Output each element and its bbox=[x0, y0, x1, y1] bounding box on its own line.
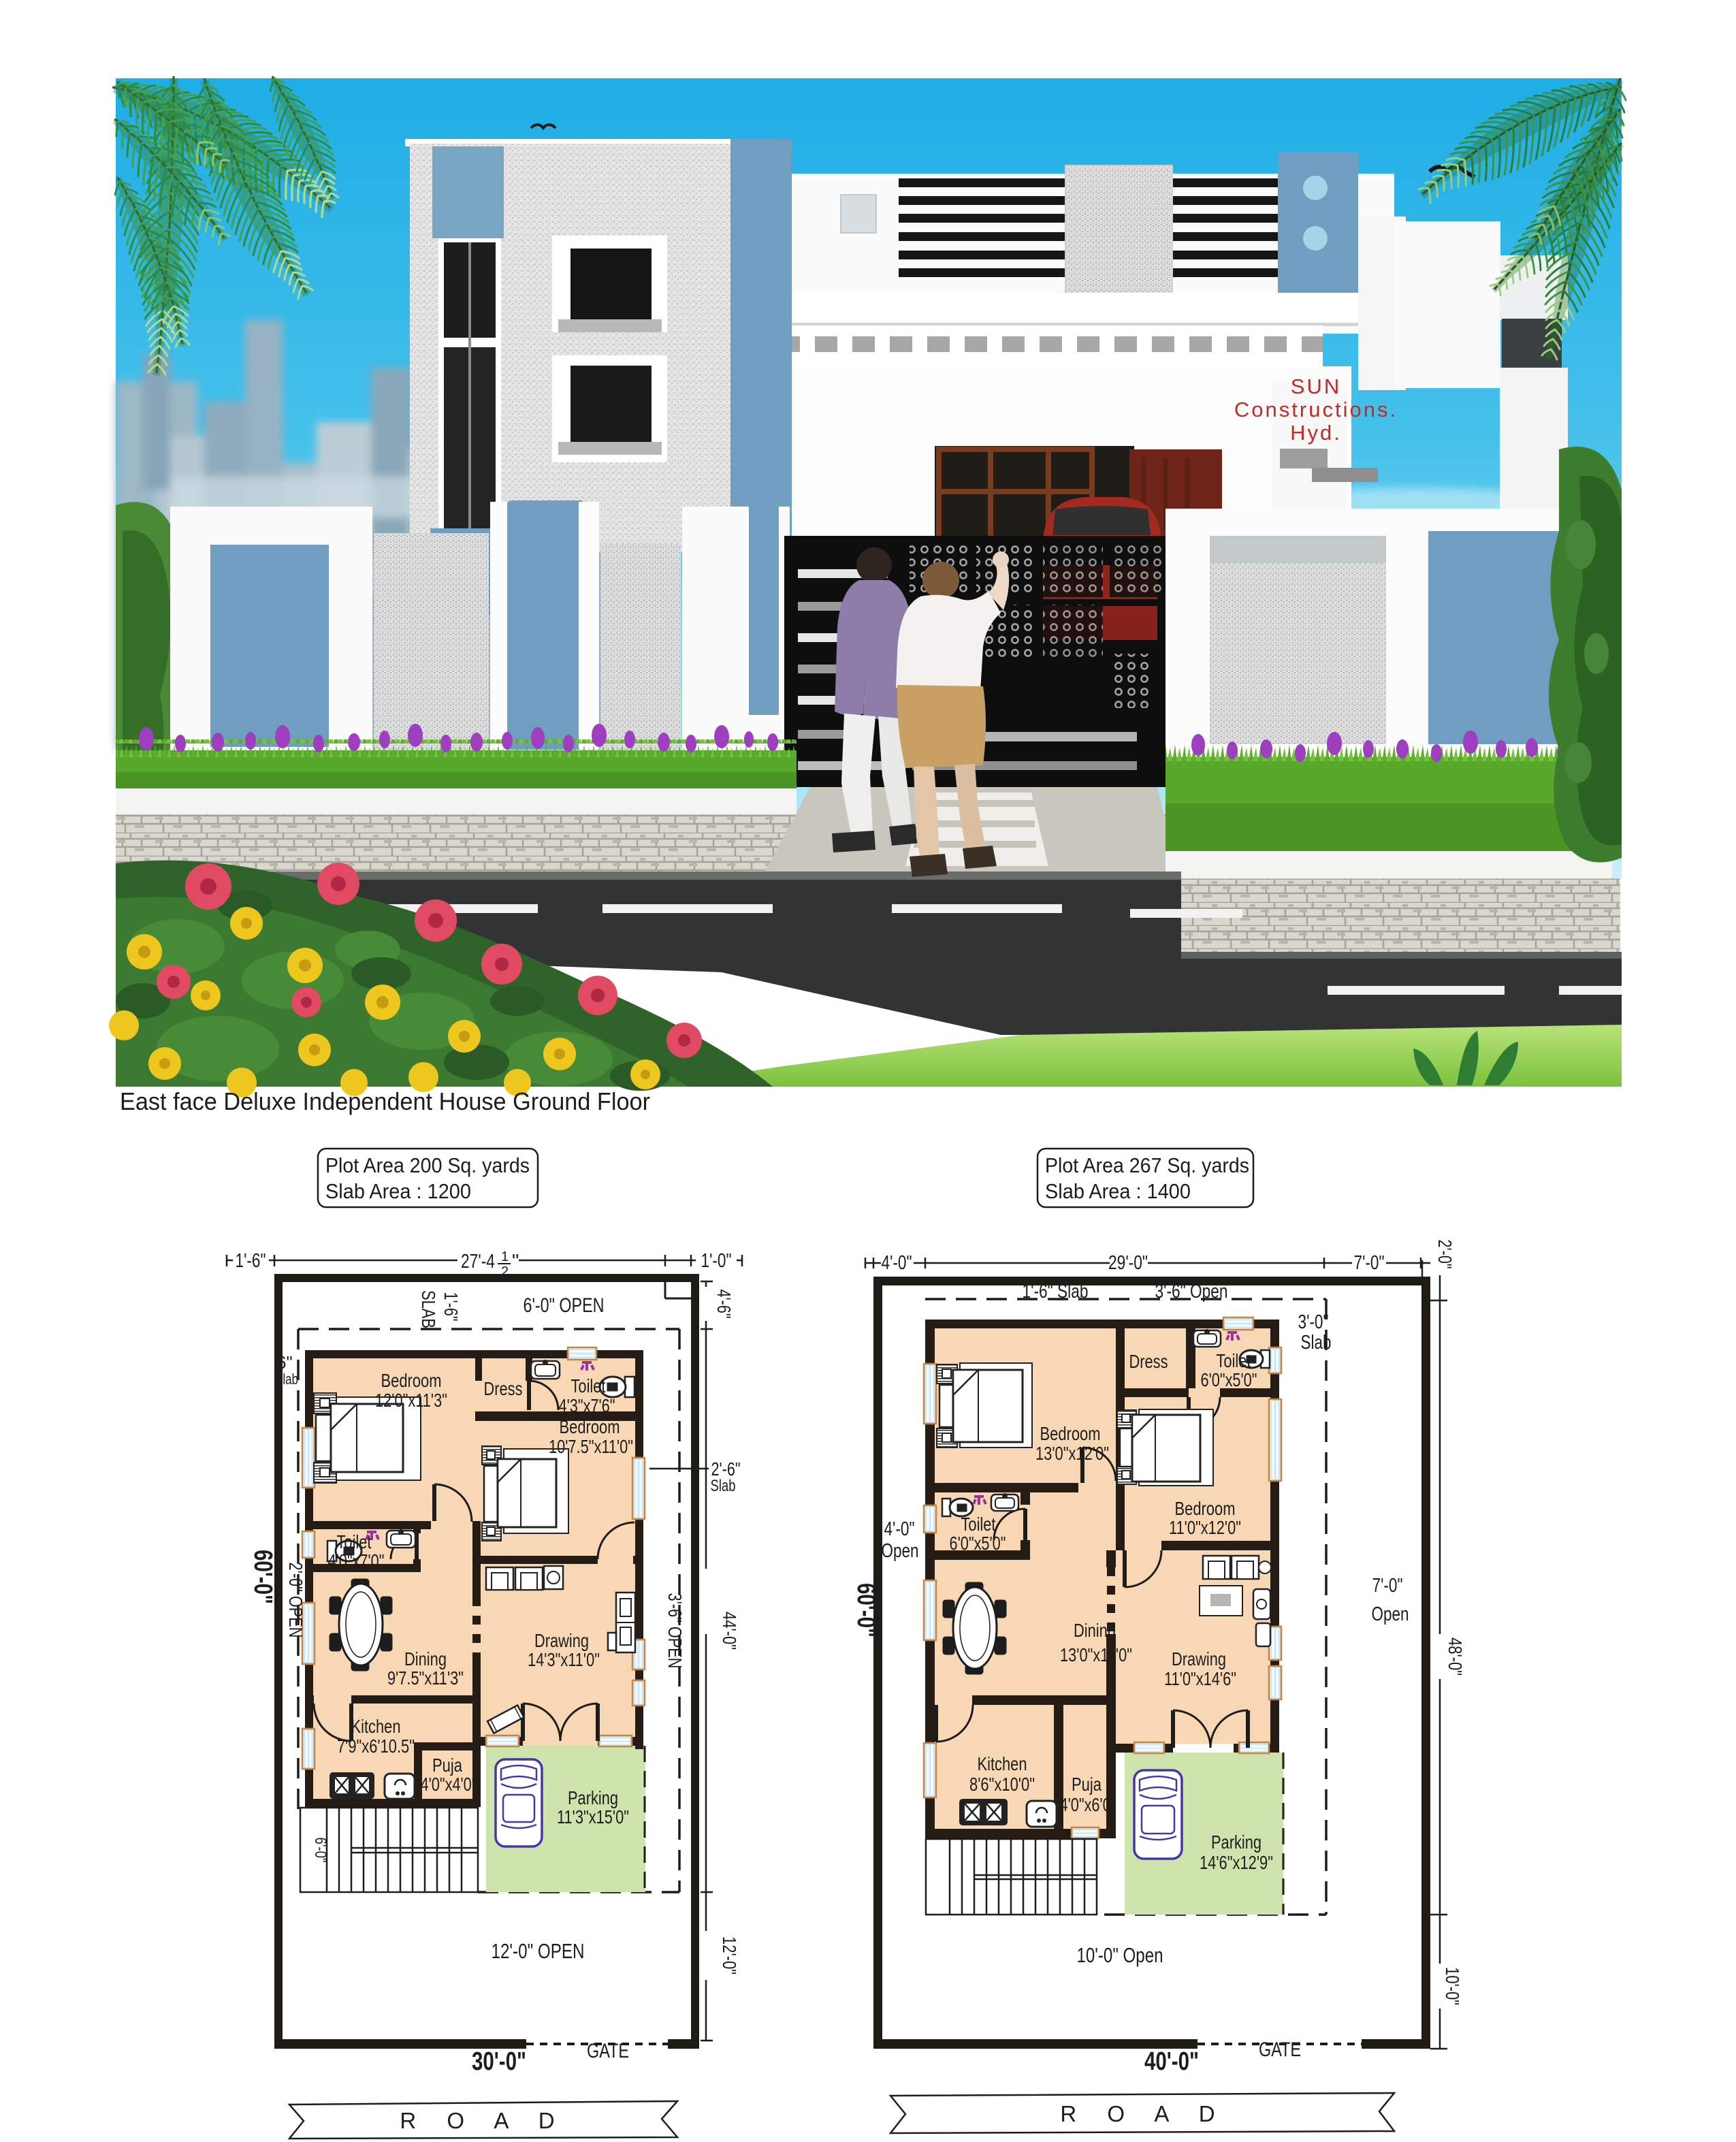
svg-text:1'-6" Slab: 1'-6" Slab bbox=[1023, 1281, 1089, 1302]
svg-text:Toilet: Toilet bbox=[337, 1531, 372, 1552]
svg-text:4'0"x6'0": 4'0"x6'0" bbox=[1060, 1794, 1116, 1815]
svg-text:8'6"x10'0": 8'6"x10'0" bbox=[969, 1774, 1035, 1795]
svg-text:3'-0": 3'-0" bbox=[1298, 1311, 1329, 1333]
svg-text:Dining: Dining bbox=[1074, 1620, 1116, 1641]
svg-text:Dining: Dining bbox=[404, 1648, 447, 1669]
svg-text:4'0"x4'0": 4'0"x4'0" bbox=[421, 1774, 477, 1795]
svg-text:Puja: Puja bbox=[432, 1755, 462, 1776]
svg-text:Slab: Slab bbox=[275, 1371, 298, 1388]
svg-text:6'0"x5'0": 6'0"x5'0" bbox=[1201, 1369, 1257, 1390]
svg-text:Kitchen: Kitchen bbox=[978, 1753, 1027, 1774]
svg-text:Toilet: Toilet bbox=[961, 1514, 996, 1535]
svg-text:4'-0": 4'-0" bbox=[882, 1252, 912, 1274]
svg-text:40'-0": 40'-0" bbox=[1144, 2047, 1199, 2076]
svg-text:6": 6" bbox=[276, 1352, 293, 1373]
svg-text:Slab Area : 1400: Slab Area : 1400 bbox=[1045, 1179, 1191, 1203]
svg-text:SLAB: SLAB bbox=[418, 1290, 439, 1328]
svg-text:60'-0": 60'-0" bbox=[852, 1583, 880, 1637]
svg-text:14'3"x11'0": 14'3"x11'0" bbox=[528, 1649, 600, 1670]
svg-text:Bedroom: Bedroom bbox=[560, 1416, 620, 1437]
svg-text:Constructions.: Constructions. bbox=[1234, 398, 1398, 421]
svg-text:Dress: Dress bbox=[484, 1378, 523, 1399]
svg-text:13'0"x12'0": 13'0"x12'0" bbox=[1035, 1443, 1109, 1464]
svg-text:6'-0": 6'-0" bbox=[311, 1838, 329, 1863]
svg-text:1: 1 bbox=[501, 1249, 509, 1264]
svg-text:2'-0": 2'-0" bbox=[1434, 1240, 1456, 1269]
svg-text:6'-0" OPEN: 6'-0" OPEN bbox=[524, 1294, 605, 1317]
svg-text:Drawing: Drawing bbox=[534, 1630, 589, 1651]
svg-text:10'-0" Open: 10'-0" Open bbox=[1077, 1943, 1163, 1967]
svg-text:3'-6" OPEN: 3'-6" OPEN bbox=[664, 1593, 686, 1669]
svg-text:Slab: Slab bbox=[711, 1477, 736, 1495]
svg-text:2'-0" OPEN: 2'-0" OPEN bbox=[285, 1563, 306, 1638]
svg-text:Plot Area 200 Sq. yards: Plot Area 200 Sq. yards bbox=[325, 1153, 530, 1177]
svg-text:Toilet: Toilet bbox=[1217, 1350, 1251, 1371]
svg-text:12'-0" OPEN: 12'-0" OPEN bbox=[492, 1939, 585, 1963]
svg-text:27'-4: 27'-4 bbox=[461, 1251, 495, 1273]
svg-text:48'-0": 48'-0" bbox=[1445, 1637, 1466, 1676]
svg-text:1'-6": 1'-6" bbox=[236, 1250, 266, 1272]
svg-text:R O A D: R O A D bbox=[1060, 2101, 1227, 2126]
svg-text:SUN: SUN bbox=[1291, 374, 1341, 398]
svg-text:9'7.5"x11'3": 9'7.5"x11'3" bbox=[387, 1667, 464, 1689]
svg-text:R O A D: R O A D bbox=[400, 2108, 566, 2133]
svg-text:6'0"x5'0": 6'0"x5'0" bbox=[950, 1533, 1006, 1554]
svg-text:1'-0": 1'-0" bbox=[701, 1250, 732, 1272]
svg-text:4'-6": 4'-6" bbox=[713, 1290, 735, 1319]
svg-text:11'0"x12'0": 11'0"x12'0" bbox=[1169, 1517, 1241, 1538]
svg-text:1'-6": 1'-6" bbox=[440, 1292, 462, 1322]
svg-text:Open: Open bbox=[882, 1540, 919, 1562]
svg-text:GATE: GATE bbox=[1259, 2039, 1301, 2061]
svg-text:4'0"x7'0": 4'0"x7'0" bbox=[328, 1550, 385, 1571]
svg-text:10'7.5"x11'0": 10'7.5"x11'0" bbox=[549, 1436, 633, 1457]
svg-text:Bedroom: Bedroom bbox=[1040, 1423, 1101, 1444]
svg-text:Plot Area 267 Sq. yards: Plot Area 267 Sq. yards bbox=[1045, 1153, 1249, 1177]
svg-text:29'-0": 29'-0" bbox=[1108, 1252, 1148, 1274]
svg-text:Dress: Dress bbox=[1129, 1351, 1168, 1372]
svg-text:4'3"x7'6": 4'3"x7'6" bbox=[559, 1395, 615, 1416]
svg-text:Bedroom: Bedroom bbox=[1175, 1498, 1236, 1519]
svg-text:10'-0": 10'-0" bbox=[1442, 1967, 1463, 2005]
svg-text:2: 2 bbox=[501, 1264, 509, 1279]
svg-text:7'9"x6'10.5": 7'9"x6'10.5" bbox=[337, 1736, 415, 1757]
svg-text:12'-0": 12'-0" bbox=[719, 1936, 740, 1975]
svg-text:Slab Area : 1200: Slab Area : 1200 bbox=[325, 1179, 471, 1203]
svg-text:GATE: GATE bbox=[587, 2040, 629, 2062]
svg-text:Drawing: Drawing bbox=[1172, 1648, 1226, 1669]
svg-text:East face Deluxe Independent H: East face Deluxe Independent House Groun… bbox=[120, 1087, 650, 1115]
svg-text:60'-0": 60'-0" bbox=[248, 1550, 277, 1604]
svg-text:7'-0": 7'-0" bbox=[1372, 1575, 1403, 1597]
svg-text:11'0"x14'6": 11'0"x14'6" bbox=[1164, 1668, 1236, 1689]
svg-text:Hyd.: Hyd. bbox=[1290, 421, 1342, 445]
svg-text:Parking: Parking bbox=[1211, 1832, 1261, 1853]
svg-text:Open: Open bbox=[1372, 1603, 1409, 1625]
svg-text:Bedroom: Bedroom bbox=[381, 1370, 442, 1391]
svg-text:44'-0": 44'-0" bbox=[719, 1612, 740, 1650]
svg-text:30'-0": 30'-0" bbox=[472, 2047, 526, 2076]
svg-text:Parking: Parking bbox=[568, 1787, 618, 1808]
svg-text:13'0"x11'0": 13'0"x11'0" bbox=[1060, 1644, 1132, 1665]
svg-text:Kitchen: Kitchen bbox=[351, 1716, 401, 1737]
svg-text:12'0"x11'3": 12'0"x11'3" bbox=[375, 1390, 447, 1411]
svg-text:Toilet: Toilet bbox=[571, 1375, 606, 1396]
svg-text:3'-6" Open: 3'-6" Open bbox=[1155, 1281, 1228, 1302]
svg-text:11'3"x15'0": 11'3"x15'0" bbox=[557, 1806, 629, 1827]
svg-text:7'-0": 7'-0" bbox=[1354, 1252, 1385, 1274]
svg-text:Slab: Slab bbox=[1301, 1332, 1332, 1354]
svg-text:": " bbox=[512, 1251, 519, 1273]
svg-text:14'6"x12'9": 14'6"x12'9" bbox=[1200, 1852, 1273, 1873]
svg-text:Puja: Puja bbox=[1072, 1774, 1102, 1795]
svg-text:4'-0": 4'-0" bbox=[884, 1518, 915, 1540]
